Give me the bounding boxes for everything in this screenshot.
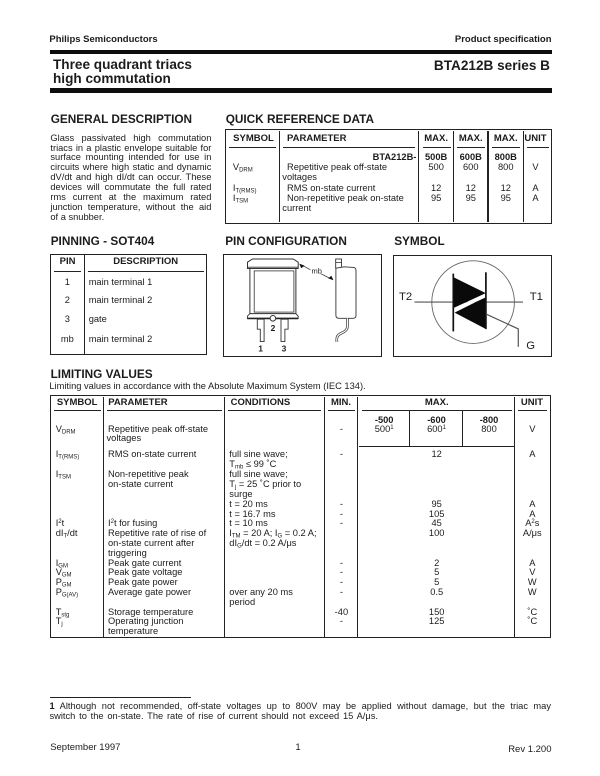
- svg-text:1: 1: [258, 343, 263, 353]
- svg-text:mb: mb: [311, 266, 321, 275]
- svg-text:2: 2: [270, 323, 275, 333]
- svg-text:3: 3: [281, 343, 286, 353]
